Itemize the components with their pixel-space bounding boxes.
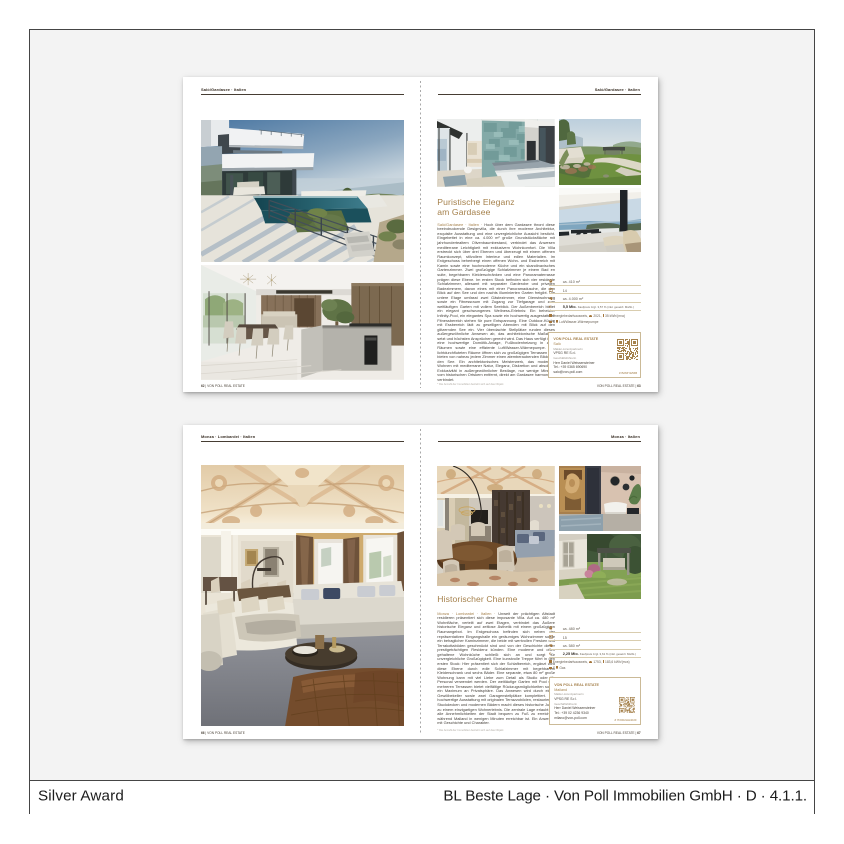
svg-text:€: €: [549, 652, 552, 656]
svg-text:€: €: [549, 305, 552, 309]
